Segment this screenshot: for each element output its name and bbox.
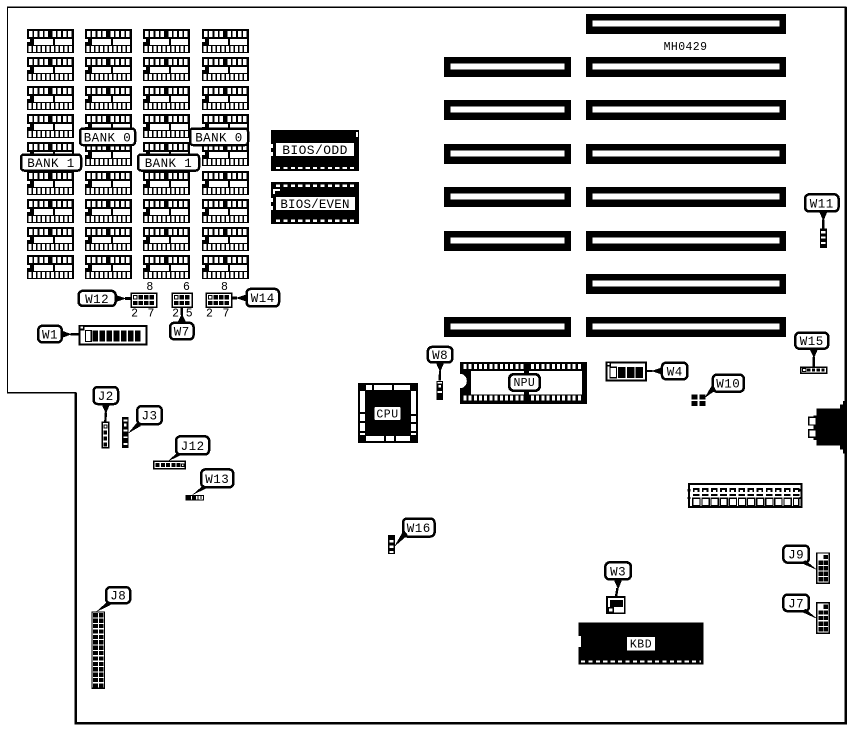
- svg-text:J8: J8: [110, 590, 126, 604]
- svg-text:W8: W8: [432, 349, 448, 363]
- svg-text:W16: W16: [407, 522, 431, 536]
- svg-text:BANK 0: BANK 0: [84, 131, 131, 145]
- svg-text:BIOS/ODD: BIOS/ODD: [282, 143, 348, 158]
- svg-text:W15: W15: [800, 335, 824, 349]
- svg-text:W12: W12: [85, 293, 109, 307]
- svg-text:BANK 0: BANK 0: [195, 131, 242, 145]
- svg-text:BANK 1: BANK 1: [27, 157, 74, 171]
- svg-text:5: 5: [186, 307, 193, 320]
- svg-text:W14: W14: [251, 292, 275, 306]
- svg-text:KBD: KBD: [630, 639, 652, 652]
- svg-text:2: 2: [131, 307, 138, 320]
- svg-text:J12: J12: [181, 440, 205, 454]
- svg-text:J9: J9: [788, 549, 804, 563]
- svg-text:2: 2: [206, 307, 213, 320]
- svg-text:NPU: NPU: [513, 377, 535, 390]
- svg-text:W1: W1: [42, 329, 58, 343]
- svg-text:8: 8: [146, 281, 153, 294]
- svg-text:W7: W7: [174, 326, 190, 340]
- svg-text:6: 6: [183, 281, 190, 294]
- svg-text:2: 2: [172, 307, 179, 320]
- svg-text:MH0429: MH0429: [664, 41, 708, 54]
- svg-text:W10: W10: [716, 378, 740, 392]
- svg-text:8: 8: [221, 281, 228, 294]
- svg-text:CPU: CPU: [376, 408, 398, 421]
- svg-text:7: 7: [223, 307, 230, 320]
- svg-text:BANK 1: BANK 1: [145, 157, 192, 171]
- svg-text:W13: W13: [205, 473, 229, 487]
- svg-text:W11: W11: [810, 197, 834, 211]
- svg-text:W4: W4: [667, 366, 683, 380]
- svg-text:J2: J2: [98, 390, 114, 404]
- svg-text:J3: J3: [141, 410, 157, 424]
- svg-text:J7: J7: [788, 597, 804, 611]
- svg-text:BIOS/EVEN: BIOS/EVEN: [280, 198, 349, 212]
- svg-text:7: 7: [148, 307, 155, 320]
- svg-text:W3: W3: [610, 565, 626, 579]
